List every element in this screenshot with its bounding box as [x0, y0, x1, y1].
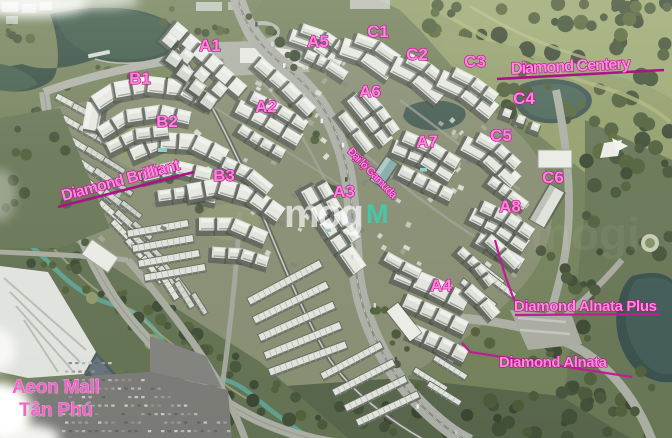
svg-text:A4: A4: [430, 276, 452, 295]
svg-text:C3: C3: [464, 52, 486, 71]
svg-text:A7: A7: [416, 132, 438, 151]
svg-text:Aeon Mall: Aeon Mall: [12, 377, 100, 398]
svg-text:A5: A5: [307, 32, 329, 51]
svg-text:C2: C2: [406, 45, 428, 64]
svg-text:C1: C1: [367, 22, 389, 41]
svg-text:Diamond Alnata Plus: Diamond Alnata Plus: [514, 298, 657, 315]
svg-text:B2: B2: [156, 112, 178, 131]
svg-text:A8: A8: [499, 197, 521, 216]
svg-text:mogi: mogi: [530, 208, 640, 260]
svg-text:A2: A2: [255, 97, 277, 116]
svg-text:A3: A3: [333, 182, 355, 201]
svg-text:C6: C6: [542, 168, 564, 187]
svg-text:Tân Phú: Tân Phú: [19, 400, 93, 421]
svg-text:M: M: [366, 199, 389, 229]
svg-text:A6: A6: [359, 82, 381, 101]
svg-text:C5: C5: [490, 126, 512, 145]
svg-text:B1: B1: [129, 69, 151, 88]
svg-text:Diamond Alnata: Diamond Alnata: [499, 354, 608, 371]
svg-text:C4: C4: [513, 89, 535, 108]
svg-text:B3: B3: [213, 166, 235, 185]
svg-text:A1: A1: [199, 36, 221, 55]
